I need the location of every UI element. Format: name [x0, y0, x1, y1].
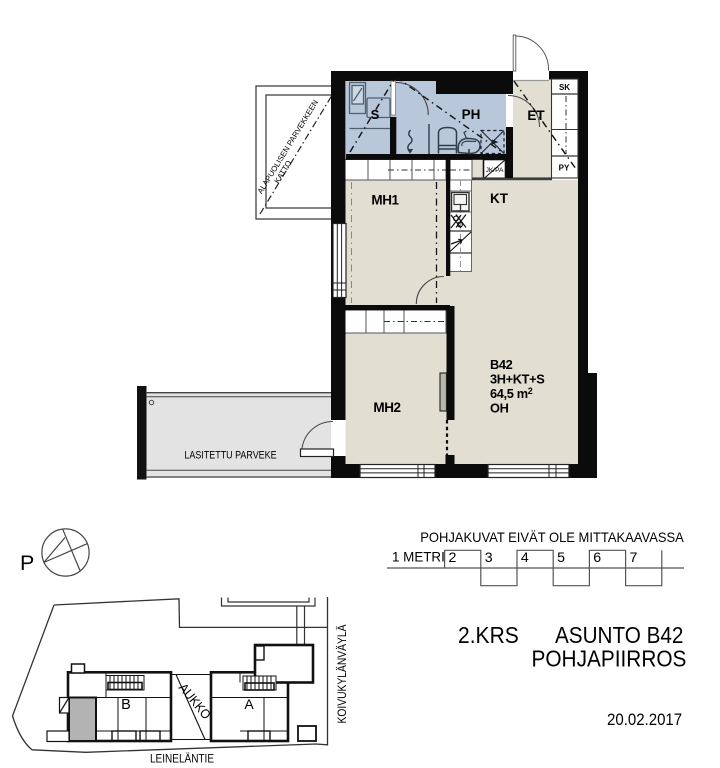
svg-text:SK: SK — [559, 83, 570, 92]
svg-text:ASUNTO B42: ASUNTO B42 — [555, 622, 683, 648]
svg-text:MH2: MH2 — [373, 400, 400, 415]
svg-text:LASITETTU PARVEKE: LASITETTU PARVEKE — [184, 450, 276, 462]
svg-text:B: B — [121, 697, 131, 713]
svg-text:JK/PA: JK/PA — [486, 167, 504, 174]
svg-text:1 METRI: 1 METRI — [392, 550, 445, 565]
svg-text:B42: B42 — [490, 357, 513, 372]
svg-text:ET: ET — [527, 108, 545, 123]
svg-text:S: S — [371, 107, 380, 122]
svg-text:PH: PH — [462, 107, 481, 122]
svg-text:POHJAPIIRROS: POHJAPIIRROS — [532, 646, 687, 672]
svg-text:P: P — [20, 551, 34, 575]
svg-text:MH1: MH1 — [371, 193, 399, 208]
svg-text:OH: OH — [490, 401, 509, 416]
svg-text:A: A — [244, 696, 254, 712]
svg-text:2: 2 — [449, 550, 457, 566]
svg-text:7: 7 — [630, 550, 638, 566]
svg-text:LEINELÄNTIE: LEINELÄNTIE — [150, 753, 214, 766]
svg-text:20.02.2017: 20.02.2017 — [607, 711, 682, 729]
svg-text:3: 3 — [485, 550, 493, 566]
svg-text:POHJAKUVAT EIVÄT OLE MITTAKAAV: POHJAKUVAT EIVÄT OLE MITTAKAAVASSA — [420, 530, 684, 545]
svg-text:KOIVUKYLÄNVÄYLÄ: KOIVUKYLÄNVÄYLÄ — [336, 624, 349, 723]
svg-text:5: 5 — [557, 550, 565, 566]
svg-text:3H+KT+S: 3H+KT+S — [490, 372, 545, 387]
svg-text:2.KRS: 2.KRS — [458, 622, 519, 648]
svg-text:64,5 m2: 64,5 m2 — [490, 386, 533, 401]
svg-text:6: 6 — [593, 550, 601, 566]
svg-text:4: 4 — [521, 550, 529, 566]
svg-text:PY: PY — [559, 164, 570, 173]
svg-text:KT: KT — [490, 191, 509, 206]
